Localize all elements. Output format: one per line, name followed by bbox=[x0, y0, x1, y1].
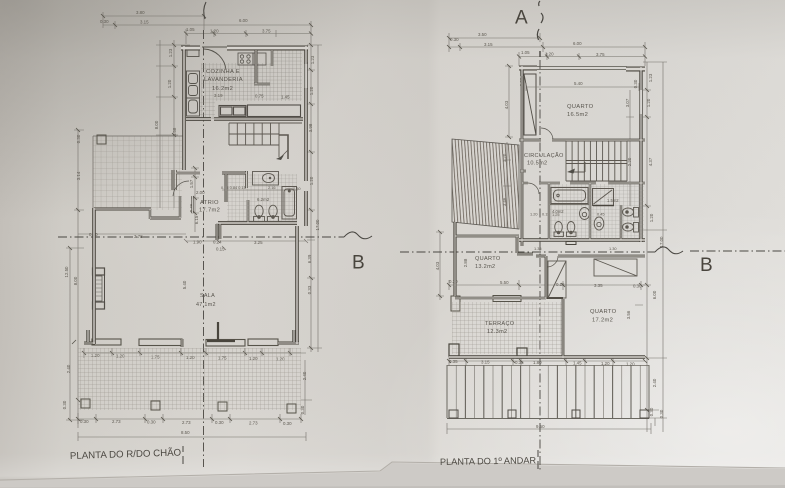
svg-text:1.30: 1.30 bbox=[609, 246, 617, 251]
svg-text:0.30: 0.30 bbox=[283, 421, 292, 426]
svg-text:2.73: 2.73 bbox=[112, 419, 121, 424]
svg-text:1.23: 1.23 bbox=[168, 48, 173, 57]
svg-text:0.15 0.84 0.15: 0.15 0.84 0.15 bbox=[221, 185, 246, 190]
svg-text:3.75: 3.75 bbox=[596, 52, 605, 57]
svg-text:B: B bbox=[700, 255, 713, 276]
svg-text:TERRAÇO: TERRAÇO bbox=[485, 321, 515, 327]
svg-text:0.30: 0.30 bbox=[76, 134, 81, 143]
svg-text:LAVANDERIA: LAVANDERIA bbox=[204, 77, 243, 83]
svg-text:1.20: 1.20 bbox=[530, 212, 538, 217]
svg-text:1.35: 1.35 bbox=[534, 246, 542, 251]
svg-text:1.57: 1.57 bbox=[189, 179, 194, 188]
svg-text:1.25: 1.25 bbox=[552, 212, 560, 217]
svg-text:17.00: 17.00 bbox=[315, 219, 320, 231]
svg-text:3.98: 3.98 bbox=[308, 123, 313, 132]
svg-text:2.40: 2.40 bbox=[66, 364, 71, 373]
svg-text:5.40: 5.40 bbox=[574, 81, 583, 86]
svg-text:0.30: 0.30 bbox=[450, 37, 459, 42]
svg-text:1.80: 1.80 bbox=[533, 360, 542, 365]
svg-text:3.07: 3.07 bbox=[625, 98, 630, 107]
svg-text:B: B bbox=[352, 253, 365, 274]
svg-text:4.03: 4.03 bbox=[435, 261, 440, 270]
svg-text:8.50: 8.50 bbox=[181, 430, 190, 435]
svg-text:16.2m2: 16.2m2 bbox=[212, 86, 233, 92]
svg-text:3.75: 3.75 bbox=[262, 29, 271, 34]
svg-text:3.14: 3.14 bbox=[76, 171, 81, 180]
svg-text:1.20: 1.20 bbox=[309, 176, 314, 185]
svg-text:3.35: 3.35 bbox=[594, 283, 603, 288]
svg-text:3.58: 3.58 bbox=[172, 127, 177, 136]
svg-text:0.15: 0.15 bbox=[542, 212, 550, 217]
svg-text:1.05: 1.05 bbox=[521, 50, 530, 55]
svg-text:8.00: 8.00 bbox=[73, 276, 78, 285]
svg-text:0.24: 0.24 bbox=[213, 240, 222, 245]
svg-text:1.20: 1.20 bbox=[167, 79, 172, 88]
svg-text:4.03: 4.03 bbox=[504, 100, 509, 109]
svg-text:0.30: 0.30 bbox=[659, 409, 664, 418]
svg-text:3.15: 3.15 bbox=[140, 20, 149, 25]
svg-text:6.00: 6.00 bbox=[573, 41, 582, 46]
svg-text:12.3m2: 12.3m2 bbox=[487, 329, 507, 335]
svg-text:1.20: 1.20 bbox=[309, 86, 314, 95]
svg-text:0.30: 0.30 bbox=[62, 400, 67, 409]
svg-text:0.30: 0.30 bbox=[633, 284, 642, 289]
svg-text:1.20: 1.20 bbox=[646, 98, 651, 107]
svg-text:PLANTA DO 1º ANDAR: PLANTA DO 1º ANDAR bbox=[440, 455, 537, 467]
svg-text:0.15: 0.15 bbox=[556, 282, 565, 287]
svg-text:COZINHA E: COZINHA E bbox=[206, 69, 240, 75]
svg-text:ATRIO: ATRIO bbox=[200, 200, 219, 206]
svg-text:1.20: 1.20 bbox=[649, 213, 654, 222]
svg-text:6.39: 6.39 bbox=[307, 254, 312, 263]
svg-text:0.30: 0.30 bbox=[649, 407, 654, 416]
svg-text:0.30: 0.30 bbox=[147, 420, 156, 425]
svg-text:1.20: 1.20 bbox=[545, 52, 554, 57]
svg-text:17.7m2: 17.7m2 bbox=[199, 208, 220, 214]
svg-text:1.23: 1.23 bbox=[310, 55, 315, 64]
svg-text:CIRCULAÇÃO: CIRCULAÇÃO bbox=[524, 152, 564, 159]
svg-text:2.40: 2.40 bbox=[652, 378, 657, 387]
svg-text:3.80: 3.80 bbox=[136, 10, 145, 15]
svg-text:0.30: 0.30 bbox=[80, 419, 89, 424]
svg-text:0.35: 0.35 bbox=[515, 360, 524, 365]
svg-text:2.88: 2.88 bbox=[463, 258, 468, 267]
svg-text:0.30: 0.30 bbox=[100, 19, 109, 24]
svg-text:5.50: 5.50 bbox=[500, 280, 509, 285]
svg-text:0.33: 0.33 bbox=[307, 285, 312, 294]
svg-text:3.19: 3.19 bbox=[214, 93, 223, 98]
svg-text:17.00: 17.00 bbox=[659, 236, 664, 248]
svg-text:0.30: 0.30 bbox=[449, 279, 458, 284]
svg-text:6.00: 6.00 bbox=[652, 290, 657, 299]
svg-text:1.20: 1.20 bbox=[210, 29, 219, 34]
svg-text:1.05: 1.05 bbox=[186, 27, 195, 32]
svg-text:3.15: 3.15 bbox=[481, 360, 490, 365]
svg-text:5.40: 5.40 bbox=[182, 280, 187, 289]
svg-text:1.45: 1.45 bbox=[281, 95, 290, 100]
svg-text:QUARTO: QUARTO bbox=[475, 256, 501, 262]
svg-text:2.16: 2.16 bbox=[268, 185, 276, 190]
svg-text:0.75: 0.75 bbox=[255, 94, 264, 99]
svg-text:2.73: 2.73 bbox=[249, 421, 258, 426]
svg-text:1.90: 1.90 bbox=[193, 240, 202, 245]
svg-text:2.73: 2.73 bbox=[182, 420, 191, 425]
svg-text:0.45: 0.45 bbox=[597, 212, 605, 217]
svg-text:6.15: 6.15 bbox=[194, 215, 199, 224]
svg-text:8.00: 8.00 bbox=[154, 120, 159, 129]
svg-text:3.15: 3.15 bbox=[484, 42, 493, 47]
svg-text:10.5m2: 10.5m2 bbox=[527, 161, 547, 167]
svg-text:1.23: 1.23 bbox=[648, 73, 653, 82]
svg-text:0.30: 0.30 bbox=[633, 79, 638, 88]
svg-text:2.40: 2.40 bbox=[302, 371, 307, 380]
svg-text:2.20: 2.20 bbox=[627, 157, 632, 166]
svg-text:4.37: 4.37 bbox=[648, 157, 653, 166]
svg-text:3.25: 3.25 bbox=[254, 240, 263, 245]
svg-text:16.5m2: 16.5m2 bbox=[567, 112, 588, 118]
svg-text:1.45: 1.45 bbox=[573, 361, 582, 366]
svg-text:0.30: 0.30 bbox=[519, 77, 524, 86]
svg-text:9.50: 9.50 bbox=[536, 424, 545, 429]
svg-text:3.50: 3.50 bbox=[478, 32, 487, 37]
svg-text:6.2m2: 6.2m2 bbox=[257, 197, 270, 202]
svg-text:17.2m2: 17.2m2 bbox=[592, 318, 613, 324]
svg-text:SALA: SALA bbox=[200, 293, 215, 299]
svg-text:0.15: 0.15 bbox=[216, 247, 225, 252]
svg-text:1.5m2: 1.5m2 bbox=[607, 198, 619, 203]
svg-text:13.2m2: 13.2m2 bbox=[475, 264, 495, 270]
svg-text:A: A bbox=[515, 8, 528, 29]
svg-text:6.00: 6.00 bbox=[239, 18, 248, 23]
svg-text:QUARTO: QUARTO bbox=[590, 309, 617, 315]
svg-text:47.1m2: 47.1m2 bbox=[196, 302, 216, 308]
svg-text:3.78: 3.78 bbox=[134, 234, 143, 239]
svg-text:QUARTO: QUARTO bbox=[567, 104, 594, 110]
svg-text:0.30: 0.30 bbox=[215, 420, 224, 425]
svg-text:3.56: 3.56 bbox=[626, 310, 631, 319]
svg-text:12.50: 12.50 bbox=[64, 266, 69, 278]
svg-text:0.35: 0.35 bbox=[449, 359, 458, 364]
